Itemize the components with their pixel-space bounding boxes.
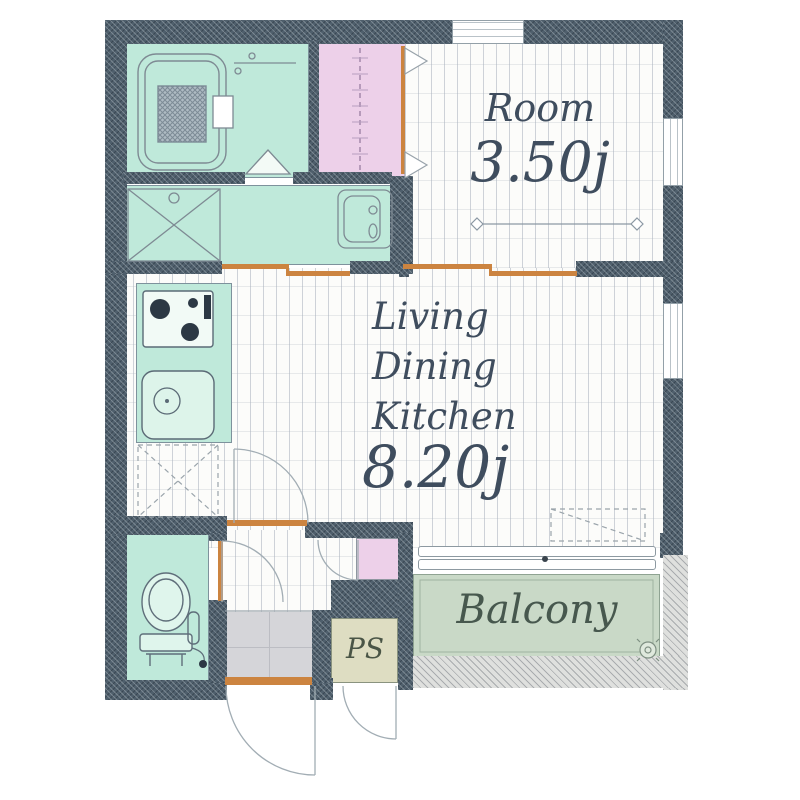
bedroom-dimension-line — [471, 218, 643, 230]
ldk-door-arc — [234, 449, 308, 523]
air-conditioner-space-icon — [551, 509, 645, 541]
ldk-line-living: Living — [372, 292, 517, 342]
shoe-cabinet-door-arc — [318, 540, 358, 580]
pipe-space-door-arc — [343, 686, 396, 739]
toilet-door-arc — [222, 541, 283, 602]
refrigerator-space-icon — [138, 445, 218, 517]
bedroom-name-label: Room — [430, 88, 650, 130]
washing-machine-pan-icon — [128, 189, 220, 261]
toilet-icon — [140, 573, 207, 668]
balcony-label: Balcony — [437, 588, 637, 632]
kitchen-sink-icon — [142, 371, 214, 439]
ldk-name-label: LivingDiningKitchen — [372, 292, 517, 442]
closet-folding-door-icon — [405, 48, 427, 178]
entrance-door-arc — [226, 686, 315, 775]
closet-hanger-rod-icon — [352, 48, 368, 172]
ldk-area-label: 8.20j — [362, 436, 509, 500]
pipe-space-label: PS — [333, 634, 397, 665]
washbasin-icon — [338, 190, 392, 248]
floor-plan: Room 3.50j LivingDiningKitchen 8.20j Bal… — [0, 0, 800, 800]
balcony-drain-icon — [637, 639, 659, 661]
stove-icon — [143, 291, 213, 347]
bedroom-area-label: 3.50j — [430, 132, 650, 193]
ldk-line-dining: Dining — [372, 342, 517, 392]
